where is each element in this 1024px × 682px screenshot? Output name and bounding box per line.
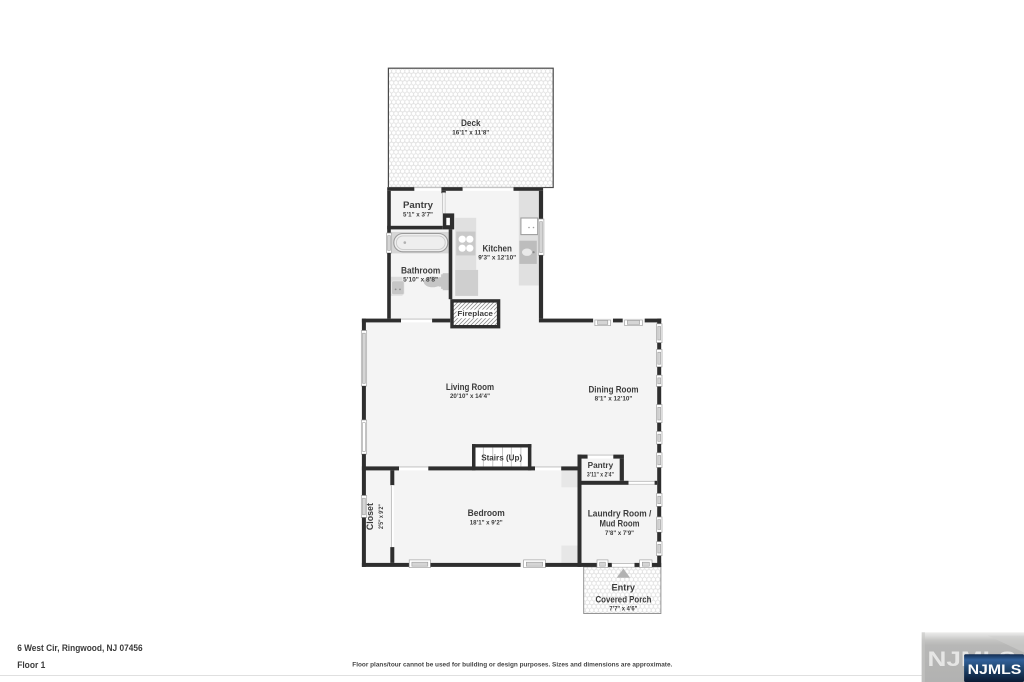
- svg-text:7’8" x 7’9": 7’8" x 7’9": [605, 530, 634, 537]
- svg-text:5’10" x 8’8": 5’10" x 8’8": [403, 277, 438, 284]
- svg-text:Floor plans/tour cannot be use: Floor plans/tour cannot be used for buil…: [352, 662, 672, 669]
- svg-text:5’1" x 3’7": 5’1" x 3’7": [403, 211, 433, 218]
- svg-text:NJMLS: NJMLS: [968, 662, 1022, 677]
- svg-text:18’1" x 9’2": 18’1" x 9’2": [470, 520, 503, 527]
- svg-text:8’1" x 12’10": 8’1" x 12’10": [595, 395, 633, 402]
- svg-text:20’10" x 14’4": 20’10" x 14’4": [450, 393, 490, 400]
- svg-text:Laundry Room /: Laundry Room /: [588, 508, 652, 518]
- svg-text:Floor 1: Floor 1: [17, 660, 46, 671]
- svg-text:Pantry: Pantry: [588, 460, 614, 470]
- svg-text:Deck: Deck: [461, 118, 481, 128]
- svg-text:Bathroom: Bathroom: [401, 265, 440, 275]
- svg-text:Covered Porch: Covered Porch: [596, 594, 652, 604]
- svg-text:Dining Room: Dining Room: [589, 384, 639, 394]
- svg-text:Stairs (Up): Stairs (Up): [481, 453, 522, 463]
- svg-text:16’1" x 11’8": 16’1" x 11’8": [452, 129, 489, 136]
- svg-text:3’11" x 2’4": 3’11" x 2’4": [587, 471, 614, 478]
- svg-text:Fireplace: Fireplace: [457, 309, 493, 318]
- svg-text:7’7" x 4’6": 7’7" x 4’6": [609, 605, 637, 612]
- svg-text:2’5" x 9’2": 2’5" x 9’2": [378, 504, 385, 529]
- svg-text:Pantry: Pantry: [403, 200, 434, 210]
- svg-text:9’3" x 12’10": 9’3" x 12’10": [478, 255, 516, 262]
- svg-text:Bedroom: Bedroom: [468, 508, 505, 518]
- svg-text:Kitchen: Kitchen: [482, 243, 512, 253]
- svg-text:Entry: Entry: [612, 582, 636, 592]
- svg-text:Closet: Closet: [365, 503, 375, 530]
- svg-text:6 West Cir, Ringwood, NJ 07456: 6 West Cir, Ringwood, NJ 07456: [17, 643, 142, 654]
- svg-text:Living Room: Living Room: [446, 382, 494, 392]
- svg-text:Mud Room: Mud Room: [600, 519, 640, 529]
